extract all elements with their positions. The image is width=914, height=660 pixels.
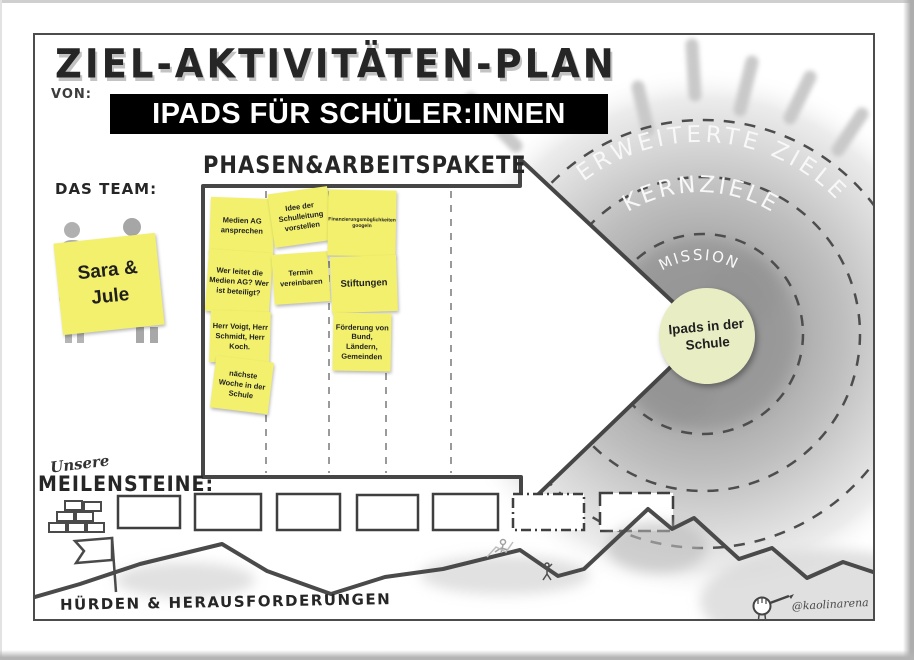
plan-canvas: ERWEITERTE ZIELE KERNZIELE MISSION — [33, 33, 875, 621]
phases-heading: PHASEN&ARBEITSPAKETE — [203, 151, 527, 179]
screen-edge — [0, 0, 914, 3]
milestone-box — [118, 496, 180, 528]
von-label: VON: — [51, 87, 92, 102]
sticky-note[interactable]: Stiftungen — [330, 255, 398, 313]
sticky-note[interactable]: Finanzierungsmöglichkeiten googeln — [327, 189, 396, 256]
screen-edge — [0, 0, 2, 660]
sticky-note[interactable]: Medien AG ansprechen — [209, 197, 275, 255]
page-title: ZIEL-AKTIVITÄTEN-PLAN — [55, 41, 617, 87]
milestone-box — [195, 494, 261, 530]
milestone-box — [277, 494, 340, 530]
project-banner: IPADS FÜR SCHÜLER:INNEN — [110, 94, 608, 134]
milestone-box — [433, 494, 498, 530]
milestone-box — [357, 495, 418, 530]
team-heading: DAS TEAM: — [55, 180, 157, 198]
sticky-note[interactable]: Förderung von Bund, Ländern, Gemeinden — [332, 312, 391, 371]
bricks-icon — [49, 501, 104, 532]
sticky-note[interactable]: Wer leitet die Medien AG? Wer ist beteil… — [205, 249, 273, 315]
milestones-heading: MEILENSTEINE: — [38, 472, 214, 497]
sticky-note[interactable]: Idee der Schulleitung vorstellen — [268, 186, 335, 248]
milestone-box — [513, 494, 584, 530]
screen-shadow — [0, 650, 914, 660]
whiteboard-screen: ERWEITERTE ZIELE KERNZIELE MISSION — [0, 0, 914, 660]
sticky-note[interactable]: Termin vereinbaren — [271, 251, 330, 305]
sticky-note-team[interactable]: Sara & Jule — [53, 233, 164, 335]
screen-shadow — [903, 0, 914, 660]
sticky-note[interactable]: nächste Woche in der Schule — [210, 356, 274, 415]
